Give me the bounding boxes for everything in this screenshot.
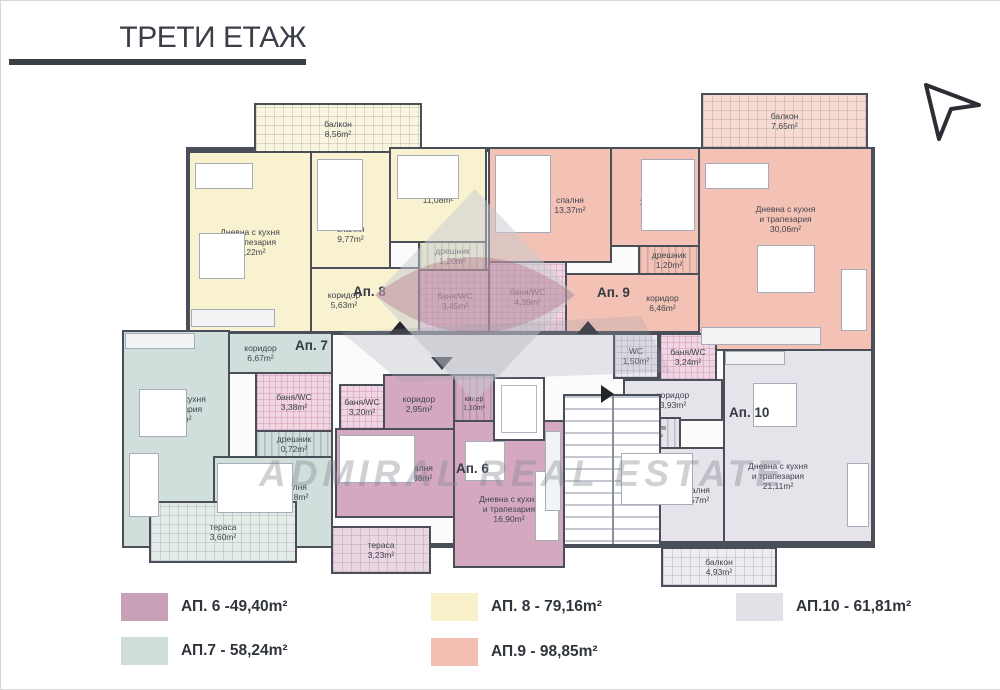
room-ap10-balcony: балкон4,93m²	[661, 547, 777, 587]
furniture-sofa	[195, 163, 253, 189]
room-ap6-terrace: тераса3,23m²	[331, 526, 431, 574]
entrance-arrow-down-icon	[431, 357, 453, 370]
furniture-bed	[397, 155, 459, 199]
legend-item-ap6: АП. 6 -49,40m²	[121, 593, 288, 621]
apartment-label-ap8: Ап. 8	[353, 284, 386, 299]
floor-plan-page: ТРЕТИ ЕТАЖ балкон8,56m² Дневна с кухня и…	[0, 0, 1000, 690]
legend-label-ap7: АП.7 - 58,24m²	[181, 642, 288, 660]
room-ap9-balcony: балкон7,65m²	[701, 93, 868, 149]
furniture-sofa	[129, 453, 159, 517]
legend-swatch-ap9	[431, 638, 478, 666]
kitchen-counter	[545, 431, 561, 511]
legend-swatch-ap10	[736, 593, 783, 621]
room-ap7-bathroom: баня/WC3,38m²	[255, 372, 333, 432]
title-underline	[9, 59, 306, 65]
furniture-bed	[621, 453, 693, 505]
furniture-sofa	[705, 163, 769, 189]
staircase-divider	[612, 396, 614, 544]
legend-item-ap10: АП.10 - 61,81m²	[736, 593, 911, 621]
legend-label-ap6: АП. 6 -49,40m²	[181, 598, 288, 616]
legend-item-ap8: АП. 8 - 79,16m²	[431, 593, 602, 621]
legend-item-ap9: АП.9 - 98,85m²	[431, 638, 598, 666]
entrance-arrow-right-icon	[601, 385, 614, 403]
furniture-sofa	[847, 463, 869, 527]
room-ap6-corridor: коридор2,95m²	[383, 374, 455, 434]
room-ap9-closet: дрешник1,20m²	[638, 245, 700, 275]
legend-item-ap7: АП.7 - 58,24m²	[121, 637, 288, 665]
kitchen-counter	[701, 327, 821, 345]
room-ap8-closet: дрешник1,20m²	[418, 241, 487, 271]
entrance-arrow-up-icon	[389, 321, 411, 334]
room-ap9-bathroom: баня/WC4,39m²	[488, 261, 567, 333]
north-arrow-icon	[901, 73, 1000, 153]
kitchen-counter	[725, 351, 785, 365]
apartment-label-ap9: Ап. 9	[597, 285, 630, 300]
room-ap6-bathroom: баня/WC3,20m²	[339, 384, 385, 430]
legend-label-ap8: АП. 8 - 79,16m²	[491, 598, 602, 616]
room-ap8-bathroom: баня/WC3,45m²	[418, 269, 492, 333]
legend-label-ap10: АП.10 - 61,81m²	[796, 598, 911, 616]
legend-swatch-ap6	[121, 593, 168, 621]
apartment-label-ap10: Ап. 10	[729, 405, 769, 420]
furniture-bed	[317, 159, 363, 231]
furniture-bed	[495, 155, 551, 233]
furniture-bed	[641, 159, 695, 231]
furniture-bed	[339, 435, 415, 483]
kitchen-counter	[125, 333, 195, 349]
apartment-label-ap6: Ап. 6	[456, 461, 489, 476]
legend-swatch-ap7	[121, 637, 168, 665]
furniture-table	[757, 245, 815, 293]
kitchen-counter	[191, 309, 275, 327]
furniture-sofa	[841, 269, 867, 331]
furniture-table	[199, 233, 245, 279]
room-ap9-wc: WC1,50m²	[613, 333, 659, 379]
entrance-arrow-up-icon	[577, 321, 599, 334]
legend-swatch-ap8	[431, 593, 478, 621]
page-title: ТРЕТИ ЕТАЖ	[1, 21, 306, 55]
furniture-table	[139, 389, 187, 437]
apartment-label-ap7: Ап. 7	[295, 338, 328, 353]
elevator	[493, 377, 545, 441]
legend-label-ap9: АП.9 - 98,85m²	[491, 643, 598, 661]
room-ap7-closet: дрешник0,72m²	[255, 430, 333, 458]
furniture-bed	[217, 463, 293, 513]
elevator-cab	[501, 385, 537, 433]
